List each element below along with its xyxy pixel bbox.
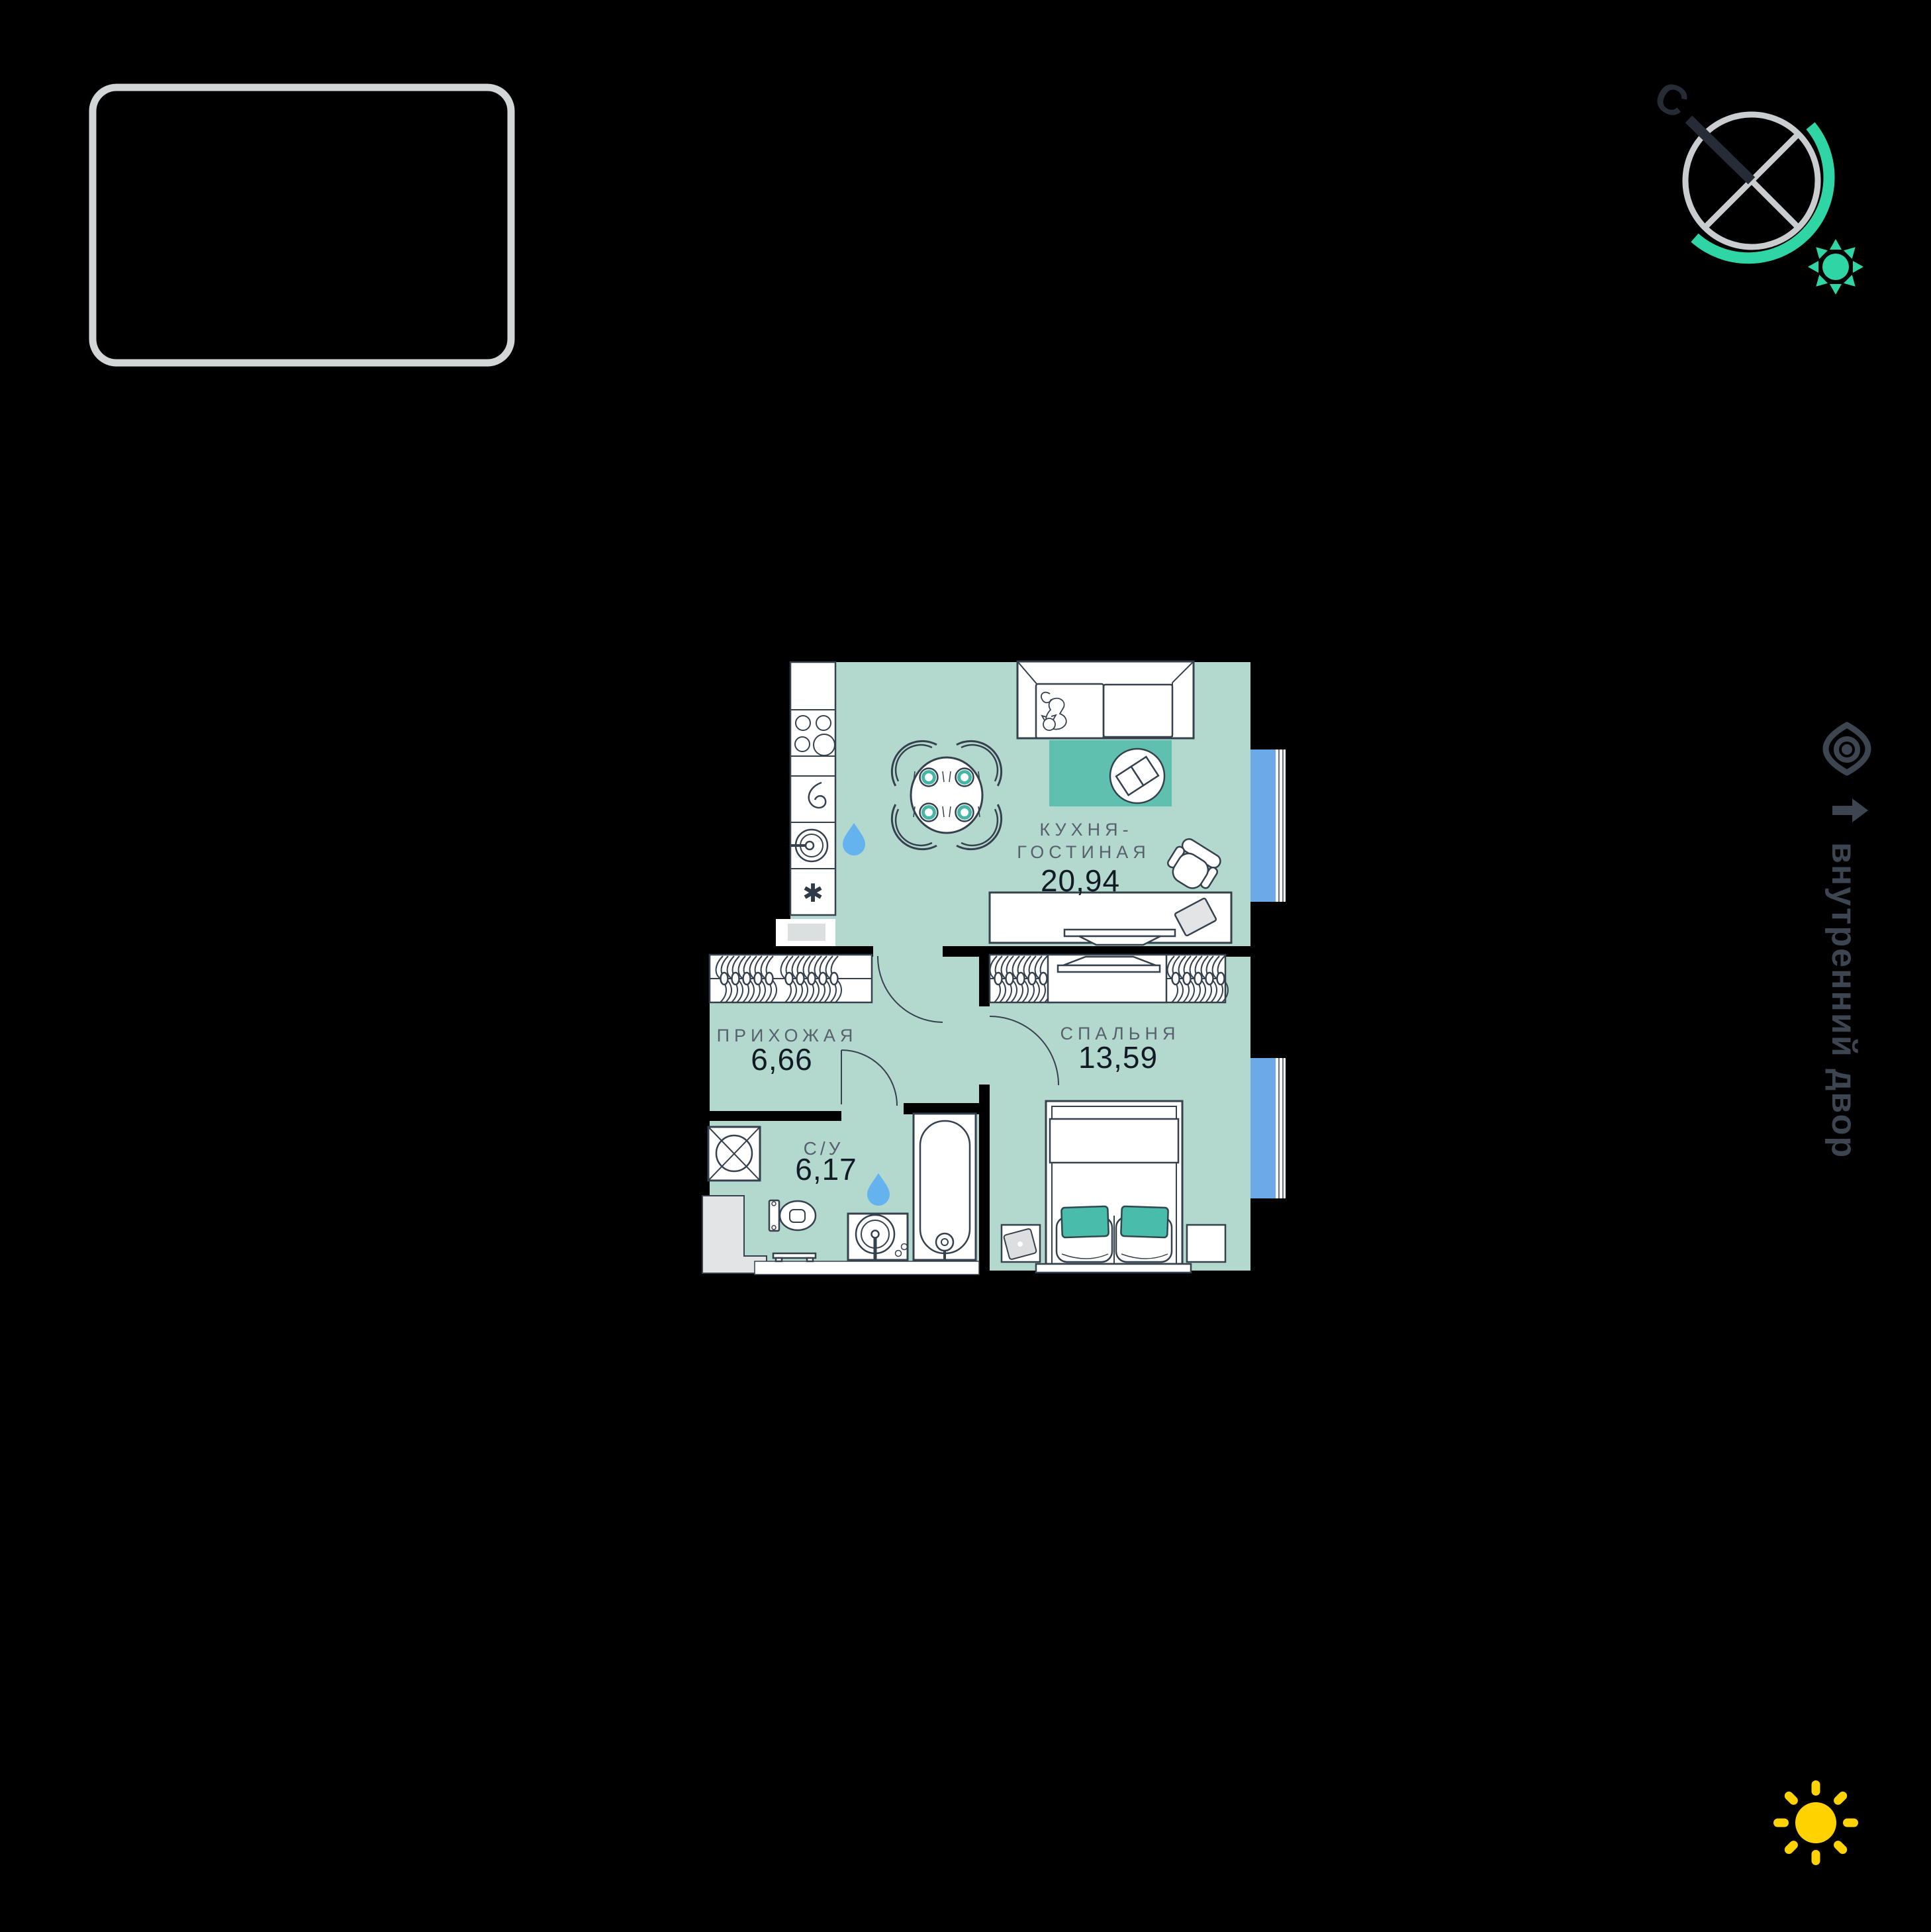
wall-bathroom-right [904, 1103, 979, 1114]
wall-bathroom-left [710, 1111, 841, 1121]
door-gap-kitchen-hallway [873, 946, 943, 957]
door-gap-bedroom [979, 1006, 990, 1085]
wardrobe-hallway [710, 955, 872, 1002]
bathtub-icon [914, 1114, 976, 1260]
coffee-table [1110, 749, 1164, 803]
window-bedroom [1250, 1058, 1286, 1198]
north-needle [1689, 119, 1752, 181]
window-living [1250, 749, 1286, 902]
blanket [1050, 1119, 1178, 1163]
sun-icon-teal [1808, 239, 1863, 295]
svg-text:20,94: 20,94 [1041, 863, 1120, 898]
floor-plan-canvas: С [0, 0, 1931, 1932]
washing-machine-icon [708, 1127, 760, 1181]
floor-plan: ✱ [702, 661, 1286, 1275]
north-label: С [1647, 71, 1697, 127]
compass-icon: С [1647, 71, 1863, 295]
sun-icon-yellow [1773, 1780, 1858, 1865]
vanity-sink-icon [848, 1214, 908, 1260]
wardrobe-bedroom [990, 955, 1228, 1002]
svg-text:ГОСТИНАЯ: ГОСТИНАЯ [1017, 842, 1151, 862]
eye-icon [1826, 725, 1868, 773]
bed-footboard [1036, 1264, 1191, 1273]
bed [1036, 1101, 1191, 1273]
bathroom-bottom-sill [755, 1261, 979, 1275]
nightstand-left [1002, 1225, 1040, 1262]
svg-text:КУХНЯ-: КУХНЯ- [1039, 820, 1133, 840]
svg-text:13,59: 13,59 [1078, 1040, 1158, 1075]
kitchen-counter: ✱ [790, 662, 835, 915]
toilet-icon [769, 1200, 816, 1231]
freezer-asterisk: ✱ [802, 880, 824, 908]
direction-arrow-icon [1832, 798, 1868, 822]
sofa [1017, 661, 1194, 738]
courtyard-label: внутренний двор [1824, 842, 1863, 1159]
legend-box [93, 87, 511, 363]
svg-text:6,17: 6,17 [795, 1152, 857, 1186]
vent-shaft-gray [788, 924, 825, 941]
nightstand-right [1187, 1225, 1225, 1262]
courtyard-annotation: внутренний двор [1824, 725, 1868, 1159]
svg-text:6,66: 6,66 [751, 1042, 813, 1077]
tv-console [990, 893, 1231, 945]
